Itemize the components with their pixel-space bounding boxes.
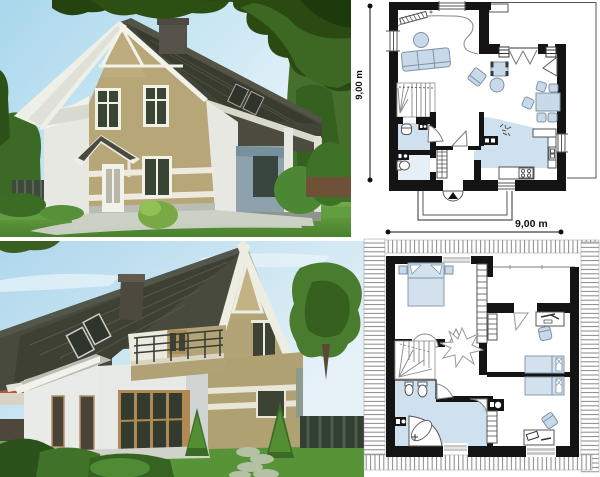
svg-text:9,00 m: 9,00 m (515, 218, 548, 230)
svg-text:9,00 m: 9,00 m (354, 70, 365, 100)
